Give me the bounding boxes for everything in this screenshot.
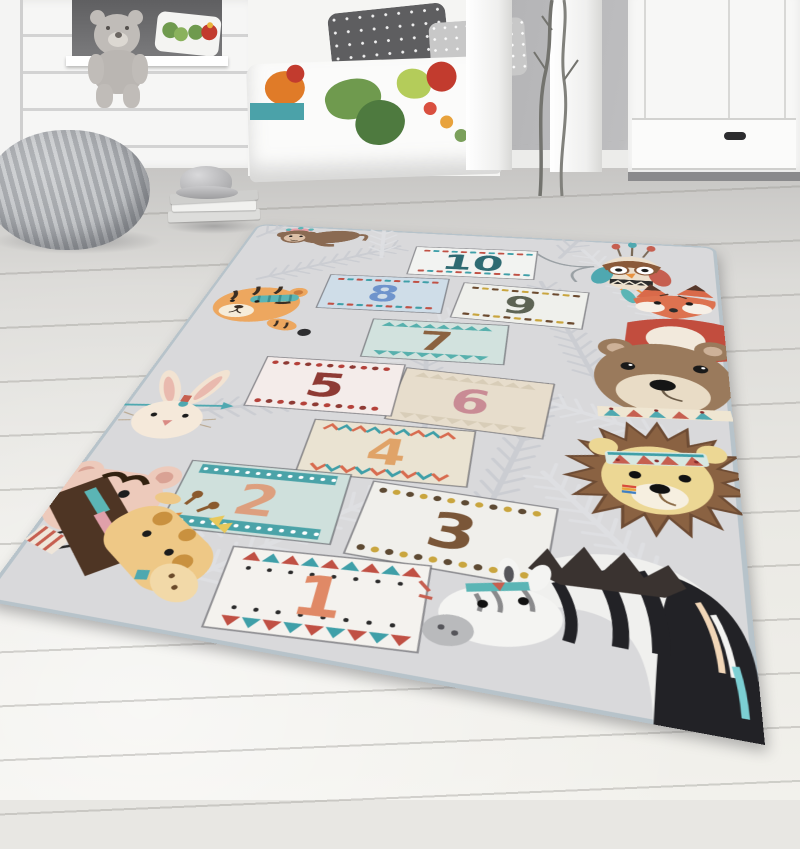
wardrobe-drawer bbox=[632, 118, 796, 170]
photo-canvas: { "scene": { "type": "product photo", "s… bbox=[0, 0, 800, 800]
decor-branches bbox=[522, 0, 592, 196]
drawer-handle bbox=[724, 132, 746, 140]
wardrobe-shadow bbox=[628, 172, 800, 181]
bed-rail-teal-left bbox=[250, 103, 304, 120]
wardrobe bbox=[628, 0, 800, 178]
silver-cap-brim bbox=[176, 186, 238, 199]
bed-post bbox=[466, 0, 512, 170]
caterpillar-pillow bbox=[154, 11, 222, 57]
teddy-bear bbox=[86, 2, 158, 110]
